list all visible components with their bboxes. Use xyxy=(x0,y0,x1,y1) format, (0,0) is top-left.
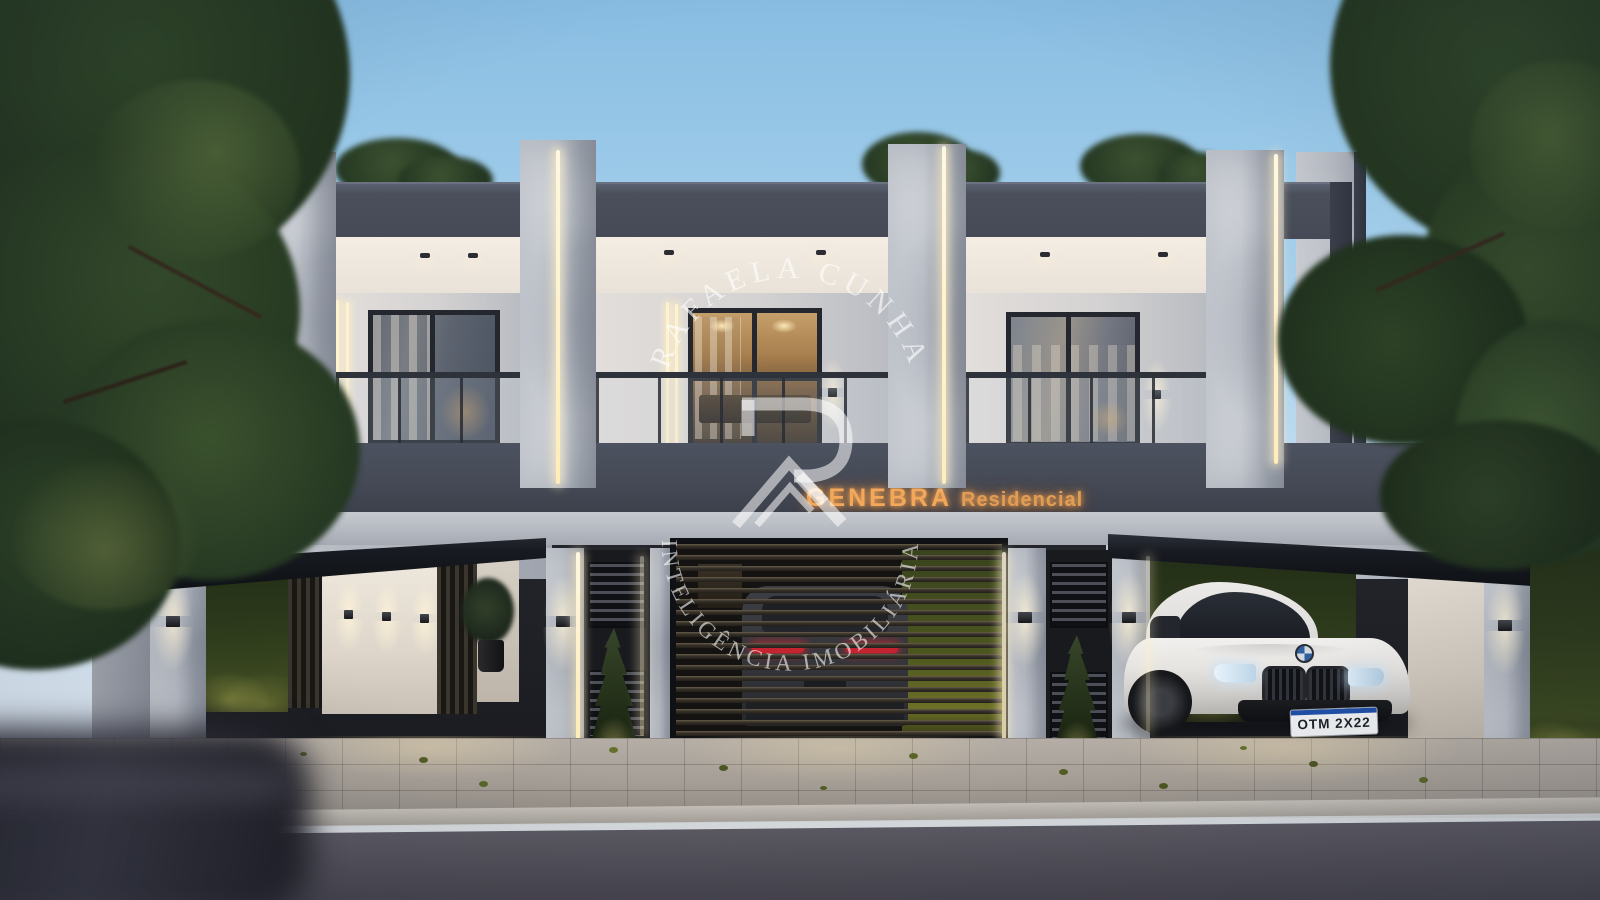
svg-text:RAFAELA CUNHA: RAFAELA CUNHA xyxy=(644,252,936,372)
realtor-watermark: RAFAELA CUNHA INTELIGÊNCIA IMOBILIÁRIA xyxy=(0,0,1600,900)
architectural-render-duplex-residence: GENEBRA Residencial xyxy=(0,0,1600,900)
watermark-arc-bottom-text: INTELIGÊNCIA IMOBILIÁRIA xyxy=(657,539,923,676)
r-monogram-logo xyxy=(736,400,846,525)
watermark-arc-top-text: RAFAELA CUNHA xyxy=(644,252,936,372)
svg-text:INTELIGÊNCIA IMOBILIÁRIA: INTELIGÊNCIA IMOBILIÁRIA xyxy=(657,539,923,676)
